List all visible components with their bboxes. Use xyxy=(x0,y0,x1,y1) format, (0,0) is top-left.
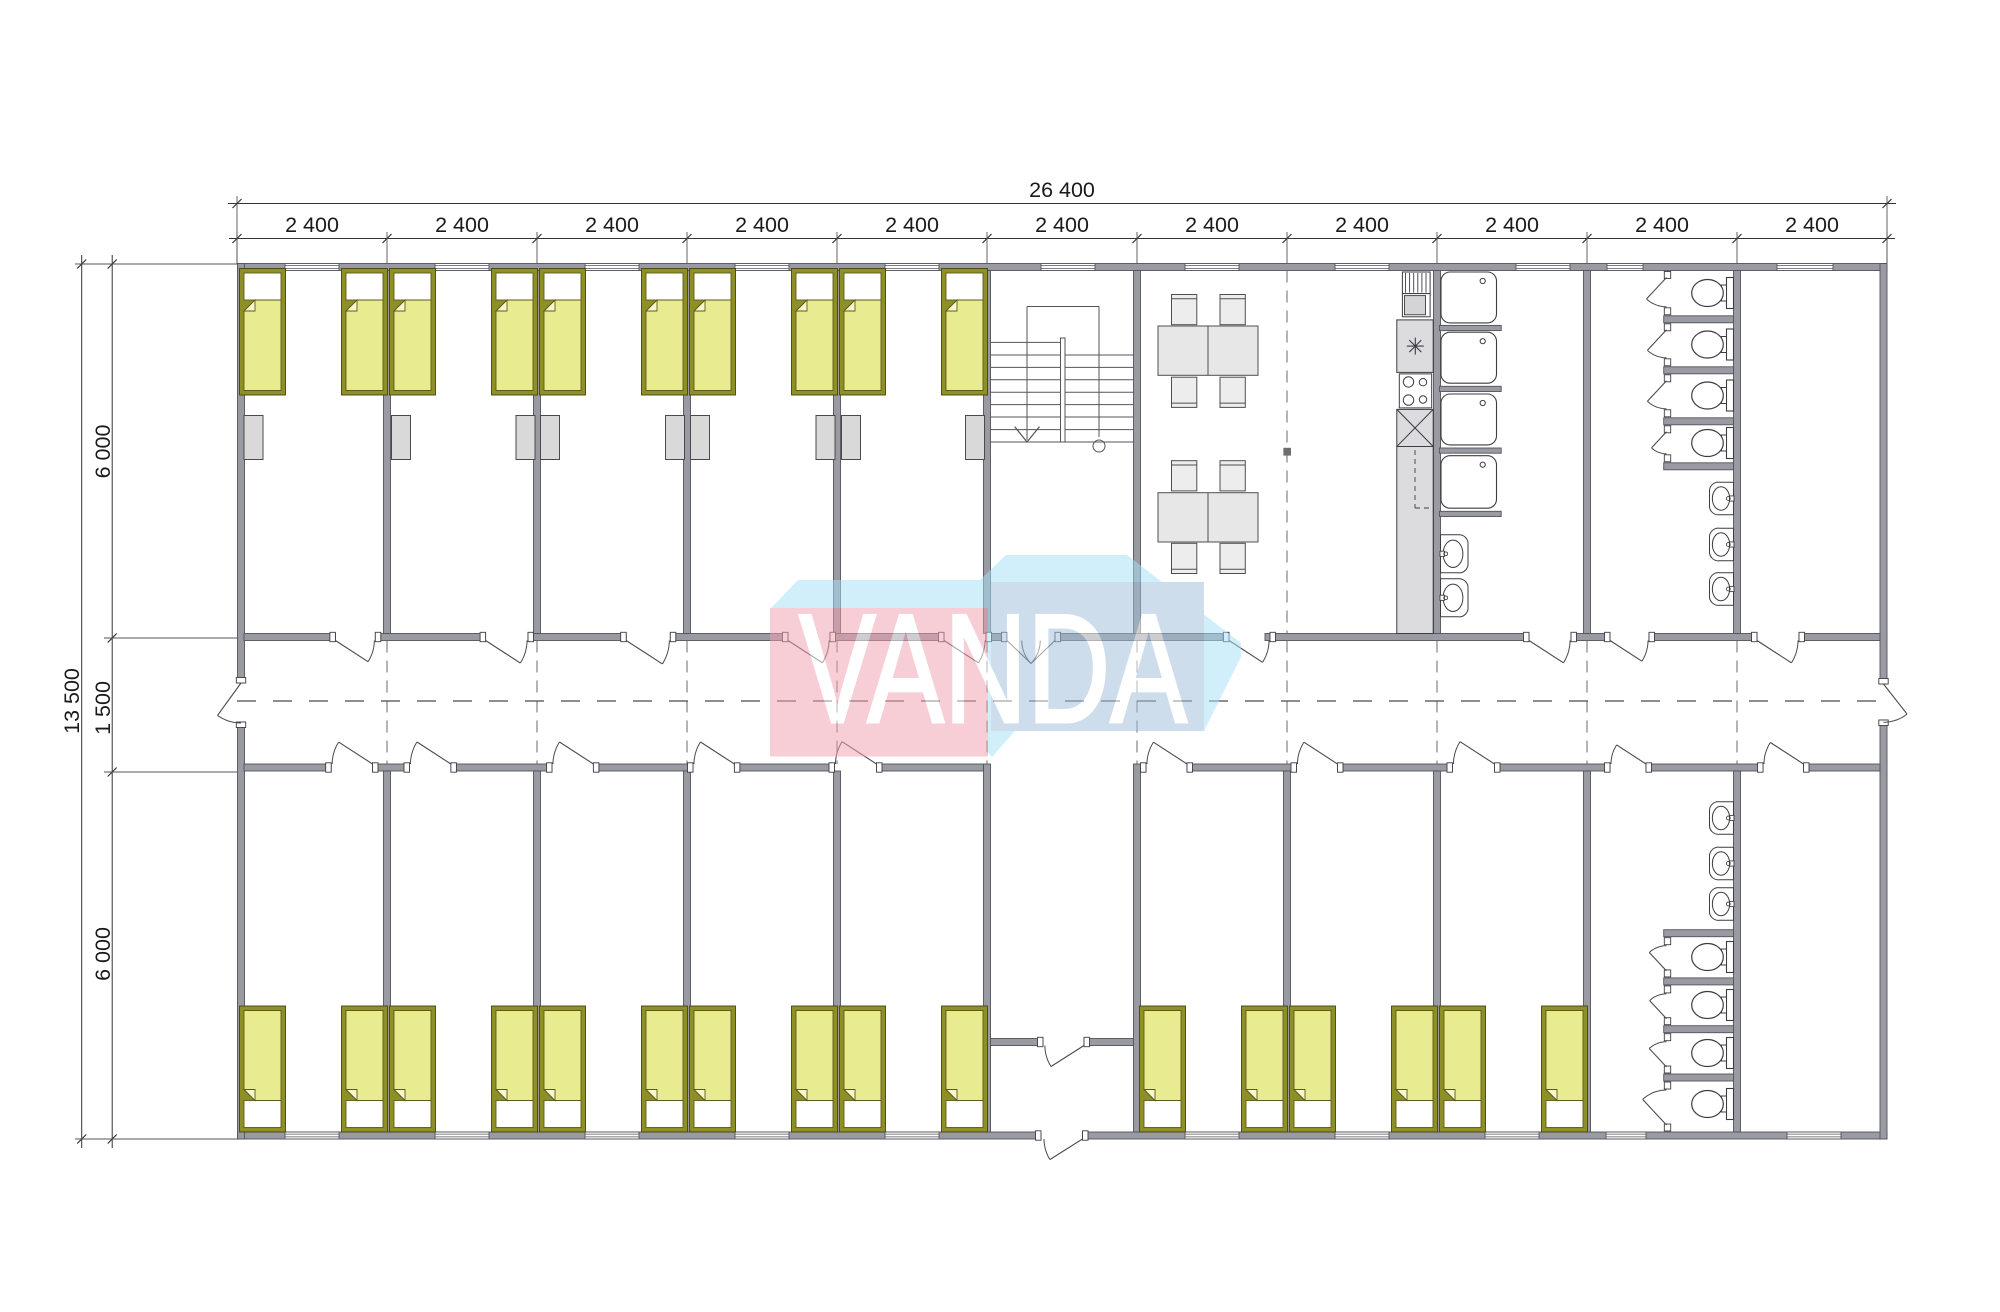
svg-text:26 400: 26 400 xyxy=(1029,178,1095,202)
svg-text:2 400: 2 400 xyxy=(1185,213,1239,237)
svg-text:2 400: 2 400 xyxy=(1635,213,1689,237)
svg-text:2 400: 2 400 xyxy=(1785,213,1839,237)
svg-text:2 400: 2 400 xyxy=(1335,213,1389,237)
svg-text:2 400: 2 400 xyxy=(735,213,789,237)
svg-text:2 400: 2 400 xyxy=(885,213,939,237)
svg-text:1 500: 1 500 xyxy=(91,681,115,735)
svg-text:2 400: 2 400 xyxy=(1035,213,1089,237)
svg-text:6 000: 6 000 xyxy=(91,927,115,981)
svg-text:2 400: 2 400 xyxy=(1485,213,1539,237)
svg-text:2 400: 2 400 xyxy=(585,213,639,237)
svg-text:2 400: 2 400 xyxy=(285,213,339,237)
svg-text:VANDA: VANDA xyxy=(799,582,1187,755)
svg-text:13 500: 13 500 xyxy=(60,668,84,734)
svg-text:2 400: 2 400 xyxy=(435,213,489,237)
svg-text:6 000: 6 000 xyxy=(91,425,115,479)
